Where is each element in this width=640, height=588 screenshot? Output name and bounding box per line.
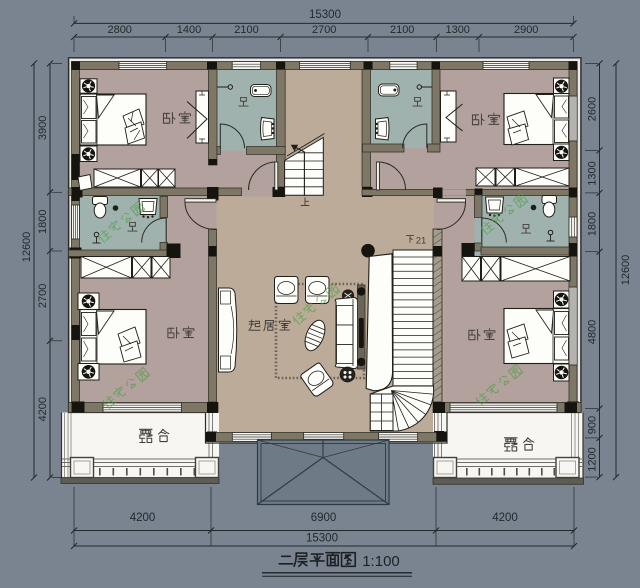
svg-text:4200: 4200 (37, 397, 49, 421)
svg-text:12600: 12600 (620, 255, 632, 286)
svg-text:2700: 2700 (312, 24, 336, 36)
svg-text:2100: 2100 (234, 24, 258, 36)
svg-text:1800: 1800 (37, 209, 49, 233)
svg-text:1400: 1400 (177, 24, 201, 36)
svg-text:2700: 2700 (37, 284, 49, 308)
svg-text:21: 21 (416, 236, 427, 247)
svg-text:4200: 4200 (130, 512, 156, 524)
svg-text:15300: 15300 (306, 533, 338, 545)
svg-text:2100: 2100 (390, 24, 414, 36)
svg-text:1800: 1800 (587, 212, 599, 236)
svg-text:1:100: 1:100 (362, 553, 400, 570)
svg-text:1300: 1300 (587, 161, 599, 185)
svg-text:4800: 4800 (587, 320, 599, 344)
svg-text:6900: 6900 (311, 512, 337, 524)
svg-text:15300: 15300 (309, 9, 341, 21)
svg-text:900: 900 (587, 416, 599, 434)
svg-text:2600: 2600 (587, 97, 599, 121)
svg-text:1300: 1300 (445, 24, 469, 36)
svg-text:1200: 1200 (587, 447, 599, 471)
svg-text:4200: 4200 (492, 512, 518, 524)
svg-text:12600: 12600 (21, 232, 33, 263)
svg-text:2800: 2800 (107, 24, 131, 36)
svg-text:3900: 3900 (37, 116, 49, 140)
svg-text:2900: 2900 (514, 24, 538, 36)
